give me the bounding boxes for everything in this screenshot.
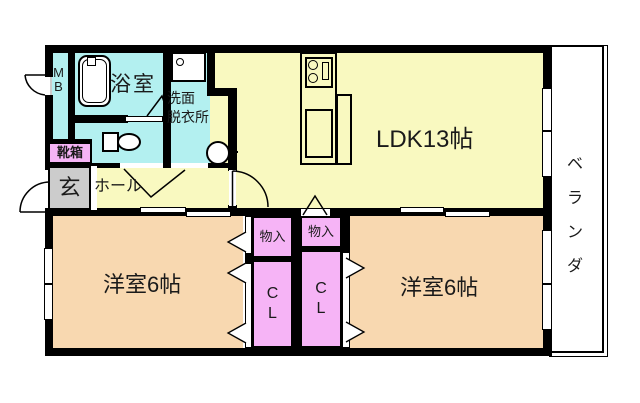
washroom-label: 洗面 脱衣所 [167, 89, 209, 127]
entrance-door-arc-icon [20, 182, 50, 212]
floorplan-canvas: 物入 CL 物入 CL 靴箱 玄 [0, 0, 640, 403]
closet1-door-chevrons-icon [228, 232, 246, 343]
meter-box-label: MB [51, 66, 66, 94]
meter-box-door-arc-icon [25, 75, 47, 95]
bedroom2-label: 洋室6帖 [400, 275, 478, 300]
ldk-door-arc-icon [233, 171, 269, 207]
veranda-label: ベランダ [566, 148, 584, 284]
storage2-door-icon [303, 196, 327, 215]
bathroom-label: 浴室 [110, 73, 156, 97]
door-marks-layer [0, 0, 640, 403]
bathroom-folding-door-icon [147, 96, 169, 116]
ldk-label: LDK13帖 [376, 126, 473, 154]
hall-label: ホール [94, 178, 142, 196]
closet2-door-chevrons-icon [346, 258, 364, 342]
bedroom1-label: 洋室6帖 [103, 272, 181, 297]
